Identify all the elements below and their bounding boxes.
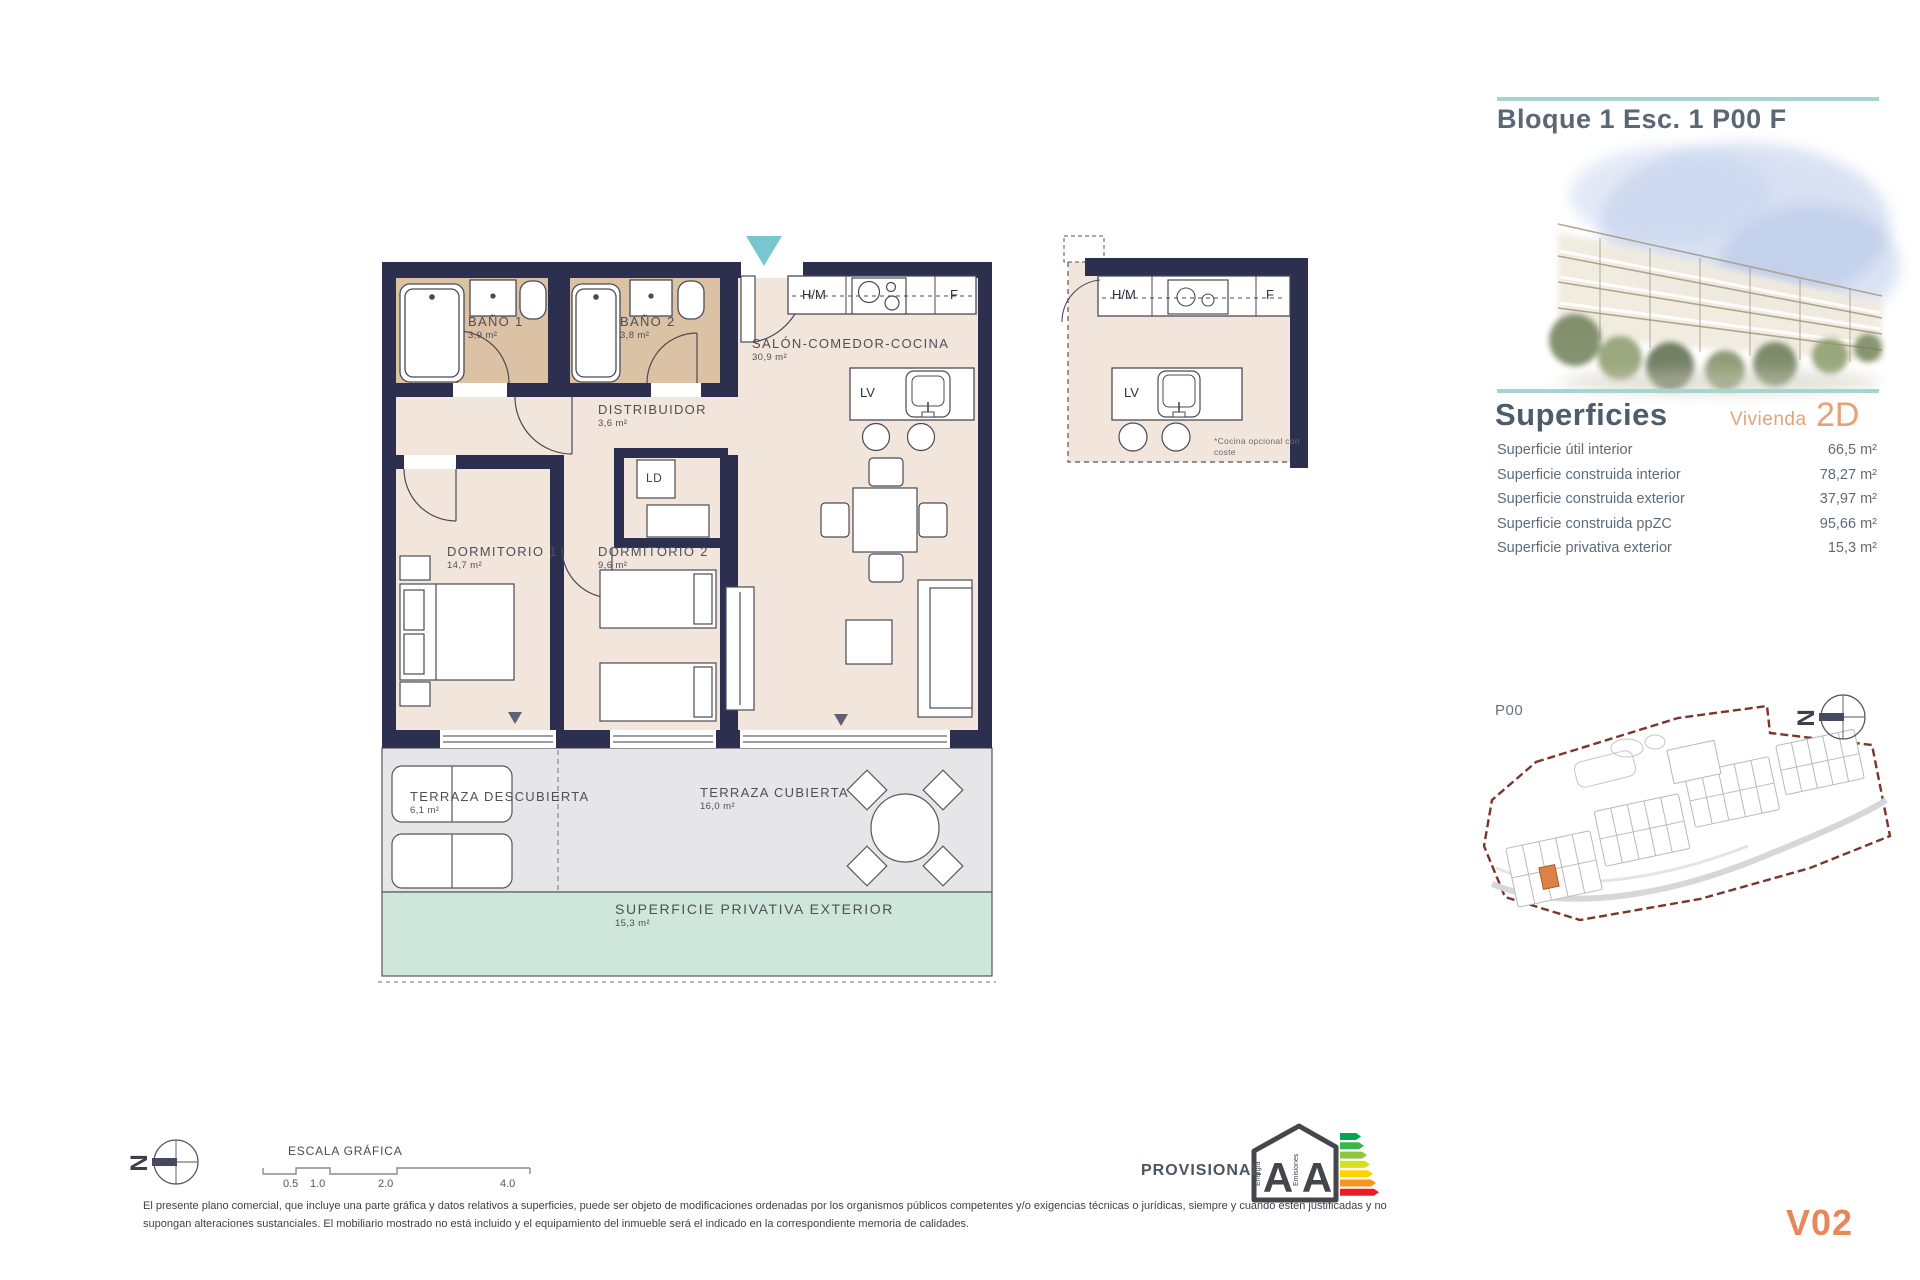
label-hm: H/M [802,287,826,302]
scale-tick: 2.0 [378,1178,393,1190]
windows [440,730,950,748]
detail-label-dishwasher: LV [1124,385,1139,400]
room-label-bano2: BAÑO 2 3,8 m² [620,314,675,341]
detail-label-fridge: F [1266,287,1274,302]
provisional-label: PROVISIONAL [1141,1162,1262,1180]
room-label-dormitorio1: DORMITORIO 1 14,7 m² [447,544,558,571]
site-plan-floor-label: P00 [1495,702,1523,719]
table-row: Superficie construida ppZC 95,66 m² [1497,516,1877,532]
north-letter: N [126,1154,153,1171]
room-label-salon: SALÓN-COMEDOR-COCINA 30,9 m² [752,336,949,363]
row-value: 37,97 m² [1820,491,1877,507]
superficies-table: Superficie útil interior 66,5 m² Superfi… [1497,442,1877,565]
row-label: Superficie útil interior [1497,442,1632,458]
version-badge: V02 [1786,1202,1853,1244]
scale-bar [263,1168,530,1174]
table-row: Superficie construida interior 78,27 m² [1497,467,1877,483]
vivienda-label: Vivienda [1730,409,1807,431]
legal-disclaimer: El presente plano comercial, que incluye… [143,1198,1413,1234]
detail-kitchen-plan [1062,236,1308,468]
row-value: 78,27 m² [1820,467,1877,483]
label-laundry: LD [646,471,662,485]
row-value: 15,3 m² [1828,540,1877,556]
label-fridge: F [950,287,958,302]
detail-label-hm: H/M [1112,287,1136,302]
detail-kitchen-note: *Cocina opcional con coste [1214,436,1306,457]
scale-tick: 0.5 [283,1178,298,1190]
row-label: Superficie privativa exterior [1497,540,1672,556]
superficies-accent-line [1497,389,1879,393]
table-row: Superficie construida exterior 37,97 m² [1497,491,1877,507]
energy-caption-right: Emisiones [1293,1153,1300,1186]
energy-letter-right: A [1302,1154,1332,1201]
table-row: Superficie privativa exterior 15,3 m² [1497,540,1877,556]
label-dishwasher: LV [860,385,875,400]
row-label: Superficie construida ppZC [1497,516,1672,532]
room-label-terraza-descubierta: TERRAZA DESCUBIERTA 6,1 m² [410,789,590,816]
scale-tick: 4.0 [500,1178,515,1190]
entrance-arrow-icon [746,236,782,266]
site-plan: N [1484,695,1890,920]
row-value: 66,5 m² [1828,442,1877,458]
row-label: Superficie construida exterior [1497,491,1685,507]
plan-sheet: N N A A Energía Emisiones Bloque 1 Esc. [0,0,1920,1280]
room-label-terraza-cubierta: TERRAZA CUBIERTA 16,0 m² [700,785,849,812]
page-title: Bloque 1 Esc. 1 P00 F [1497,104,1787,135]
north-letter: N [1793,709,1820,726]
plan-graphics: N N A A Energía Emisiones [0,0,1920,1280]
room-label-dormitorio2: DORMITORIO 2 9,6 m² [598,544,709,571]
scale-title: ESCALA GRÁFICA [288,1144,403,1158]
energy-letter-left: A [1263,1154,1293,1201]
room-label-distribuidor: DISTRIBUIDOR 3,6 m² [598,402,707,429]
building-illustration [1549,143,1900,394]
room-label-superficie-privativa: SUPERFICIE PRIVATIVA EXTERIOR 15,3 m² [615,901,894,929]
room-label-bano1: BAÑO 1 3,9 m² [468,314,523,341]
header-accent-line [1497,97,1879,101]
vivienda-code: 2D [1816,396,1859,435]
energy-rating-icon: A A Energía Emisiones [1254,1126,1379,1201]
row-label: Superficie construida interior [1497,467,1681,483]
superficies-title: Superficies [1495,397,1668,433]
north-compass-sheet: N [126,1140,198,1184]
row-value: 95,66 m² [1820,516,1877,532]
scale-tick: 1.0 [310,1178,325,1190]
table-row: Superficie útil interior 66,5 m² [1497,442,1877,458]
energy-bars [1340,1133,1379,1196]
